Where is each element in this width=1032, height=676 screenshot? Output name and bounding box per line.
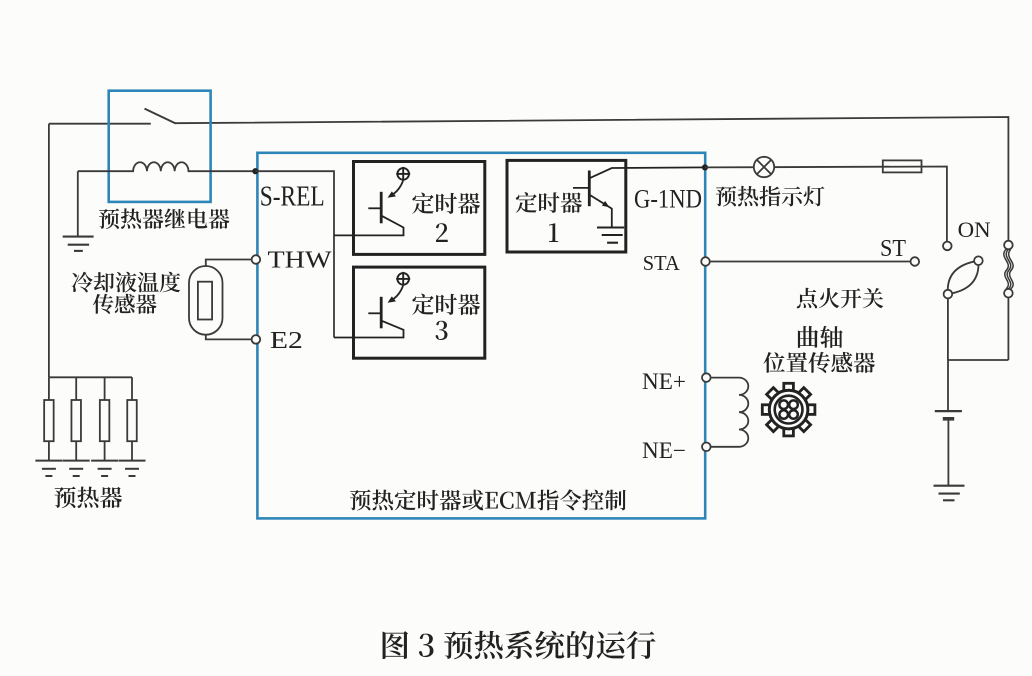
svg-text:THW: THW — [268, 248, 332, 274]
svg-text:NE+: NE+ — [642, 369, 686, 394]
svg-text:ST: ST — [880, 236, 906, 262]
svg-text:NE−: NE− — [642, 438, 686, 463]
svg-text:E2: E2 — [270, 328, 303, 354]
svg-text:STA: STA — [643, 251, 680, 275]
svg-text:ON: ON — [958, 217, 991, 242]
svg-text:S-REL: S-REL — [260, 181, 325, 212]
svg-text:G-1ND: G-1ND — [634, 185, 702, 214]
